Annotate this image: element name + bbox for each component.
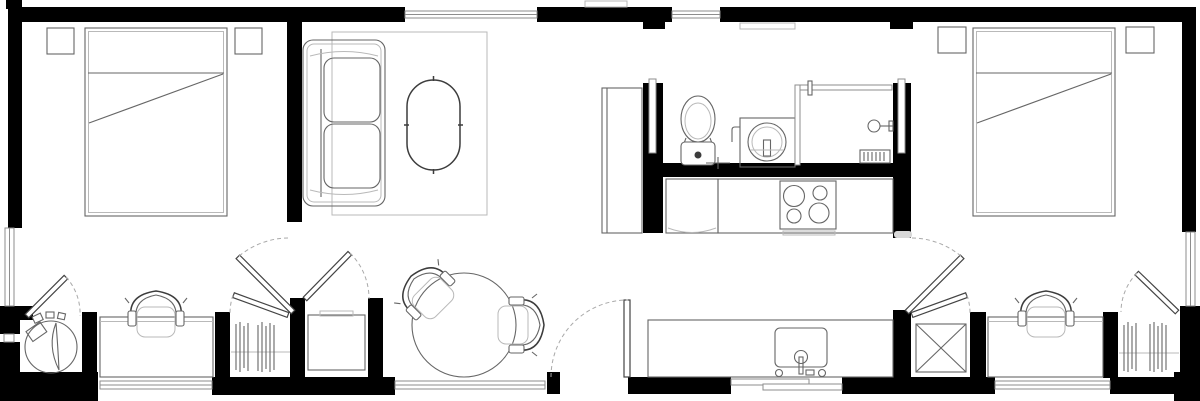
door-leaf-niche — [303, 252, 351, 301]
coffee-table — [404, 76, 463, 174]
door-swing-bedroom-right — [912, 238, 962, 257]
entry-door-swing — [551, 300, 628, 377]
desk-chair-right — [1015, 291, 1077, 337]
round-dining-table — [412, 273, 516, 377]
round-appliance — [25, 312, 77, 373]
wall-segment — [8, 7, 22, 228]
hall-shelf — [740, 23, 795, 29]
walls — [0, 0, 1200, 401]
door-swing-niche — [350, 253, 369, 299]
door-leaf-utility — [25, 275, 67, 317]
room-living — [303, 32, 487, 215]
floor-plan-canvas: architectural floor plan — [0, 0, 1200, 401]
window-bottom-desk-right — [995, 381, 1110, 389]
room-bedroom-left — [47, 28, 262, 216]
hall-left-col — [215, 312, 230, 378]
window-top-hall — [672, 11, 720, 18]
dining-chair — [389, 254, 465, 330]
wardrobe-closet-right — [1119, 322, 1179, 372]
upper-counter — [718, 179, 893, 233]
window-bottom-desk-left — [100, 381, 212, 389]
wall-segment — [628, 377, 731, 394]
door-swing-closet-right — [1121, 273, 1137, 312]
desk-left — [100, 317, 213, 377]
wall-pier — [547, 372, 560, 394]
washing-machine — [706, 118, 795, 169]
entry-door-leaf — [624, 300, 630, 377]
shower-enclosure — [795, 81, 893, 165]
hall-left-col — [82, 312, 97, 378]
shower-head-icon — [868, 120, 893, 132]
door-leaf-closet-right — [1135, 271, 1179, 313]
wall-segment — [720, 7, 1196, 22]
wall-pier — [643, 22, 665, 29]
wall-segment — [212, 377, 395, 395]
entry-dining — [303, 252, 630, 377]
hall-right — [905, 238, 1179, 377]
window-bottom-dining — [395, 381, 545, 389]
wall-segment — [842, 377, 995, 394]
nightstand — [47, 28, 74, 54]
door-swing-bedroom-left — [238, 238, 288, 257]
door-swing-closet-x — [967, 295, 970, 313]
room-bathroom — [649, 79, 905, 169]
wall-end-cap — [894, 231, 912, 238]
wall-segment — [0, 306, 20, 334]
sink-with-faucet — [775, 328, 827, 377]
floor-drain — [860, 150, 890, 163]
wardrobe-closet-left — [231, 322, 290, 372]
partition-bedroom-left — [287, 22, 302, 222]
window-right-wall — [1186, 232, 1195, 306]
desk-right — [988, 317, 1103, 377]
pocket-door-left — [649, 79, 656, 153]
nightstand — [235, 28, 262, 54]
wall-segment — [537, 7, 672, 22]
toilet — [681, 96, 715, 165]
wall-pier — [890, 22, 913, 29]
room-bedroom-right — [938, 27, 1154, 216]
hall-right-col — [893, 310, 911, 378]
floor-plan-drawing: architectural floor plan — [0, 0, 1200, 401]
nightstand — [1126, 27, 1154, 53]
niche-col — [368, 298, 383, 378]
hall-right-col — [1103, 312, 1118, 378]
under-counter-unit — [666, 179, 718, 233]
wall-segment — [1182, 7, 1196, 232]
double-bed — [85, 28, 227, 216]
windows — [4, 1, 1195, 390]
nightstand — [938, 27, 966, 53]
shower-door-handle — [808, 81, 812, 95]
door-swing-utility — [66, 277, 80, 316]
appliance-cabinet — [308, 311, 365, 370]
window-bottom-sliding — [731, 379, 842, 390]
sofa — [303, 40, 385, 206]
dining-chair — [498, 294, 544, 356]
tall-cabinet — [602, 88, 642, 233]
roof-tab — [585, 1, 627, 7]
window-top-living — [405, 11, 537, 18]
desk-chair-left — [125, 291, 187, 337]
hall-right-col — [970, 312, 986, 378]
mechanical-closet-x — [916, 324, 966, 372]
hall-left — [25, 238, 295, 377]
island-counter — [648, 320, 893, 377]
cooktop-4-burners — [780, 181, 836, 235]
wall-corner-block — [1174, 372, 1200, 401]
wall-segment — [8, 7, 405, 22]
double-bed — [973, 28, 1115, 216]
door-swing-closet-left — [230, 295, 233, 313]
pocket-door-right — [898, 79, 905, 153]
